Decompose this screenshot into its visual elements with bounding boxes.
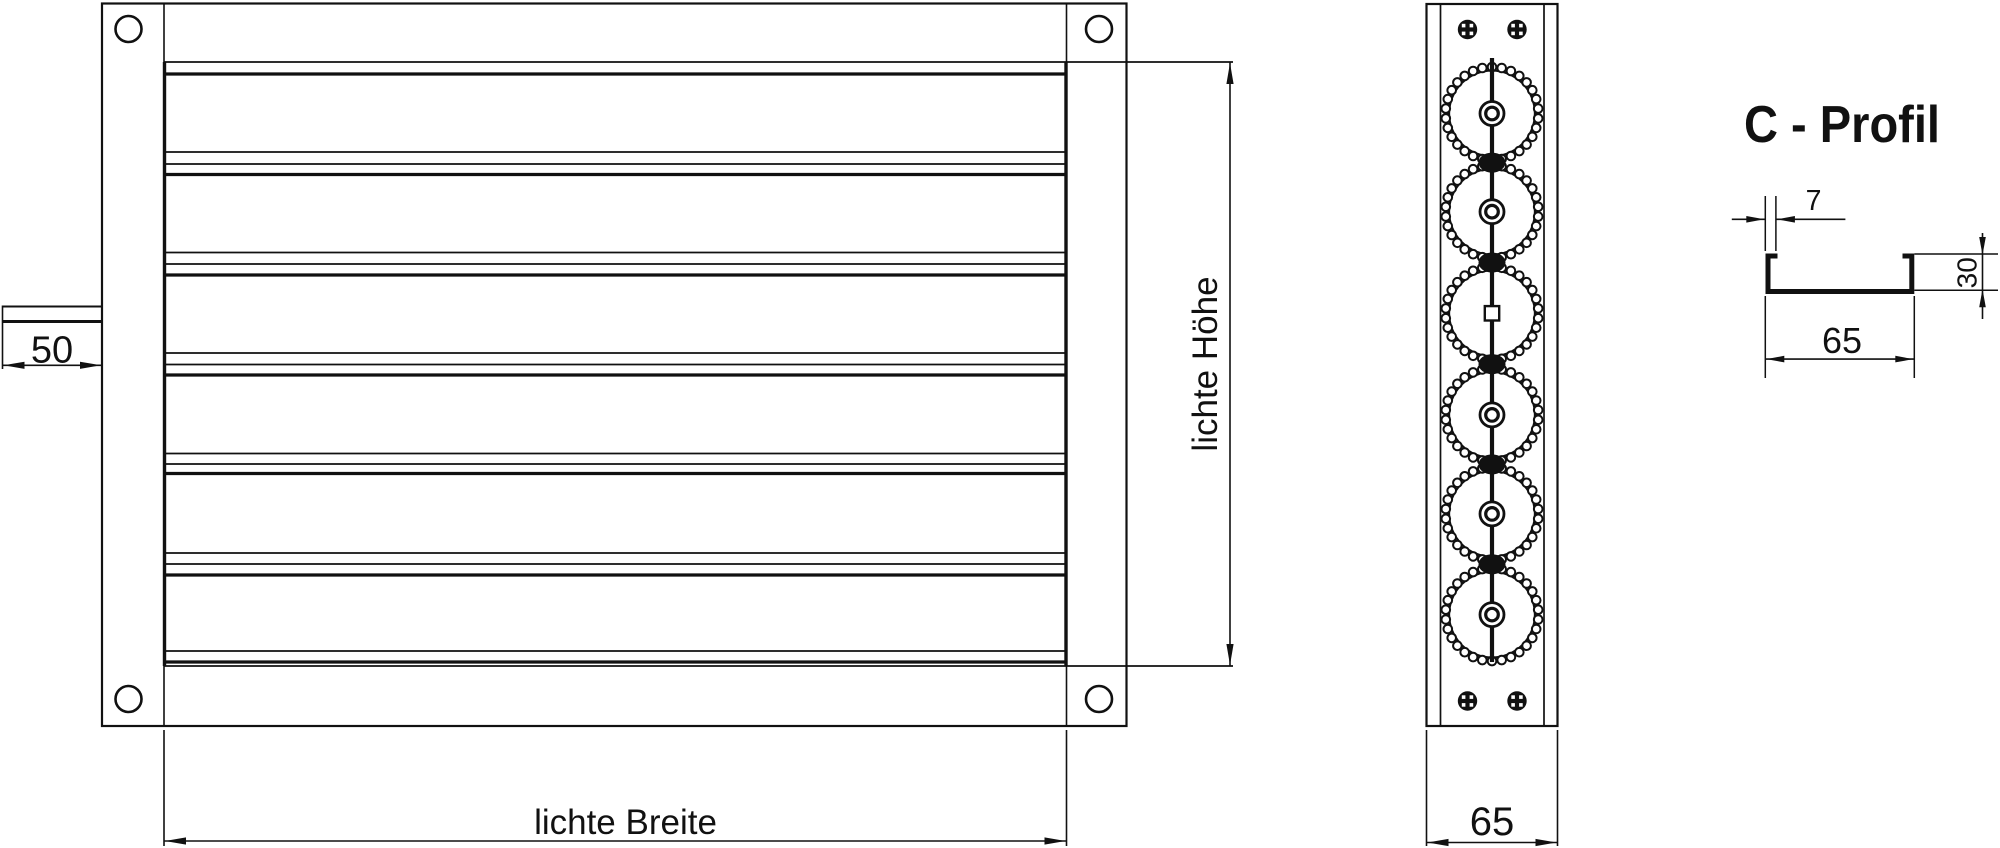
svg-text:lichte Breite: lichte Breite bbox=[534, 803, 717, 842]
svg-text:50: 50 bbox=[31, 330, 73, 372]
svg-text:65: 65 bbox=[1470, 800, 1515, 844]
svg-text:lichte Höhe: lichte Höhe bbox=[1186, 276, 1225, 451]
svg-text:65: 65 bbox=[1822, 320, 1862, 361]
svg-text:7: 7 bbox=[1806, 185, 1822, 217]
svg-text:C - Profil: C - Profil bbox=[1744, 96, 1940, 154]
svg-text:30: 30 bbox=[1952, 257, 1983, 288]
